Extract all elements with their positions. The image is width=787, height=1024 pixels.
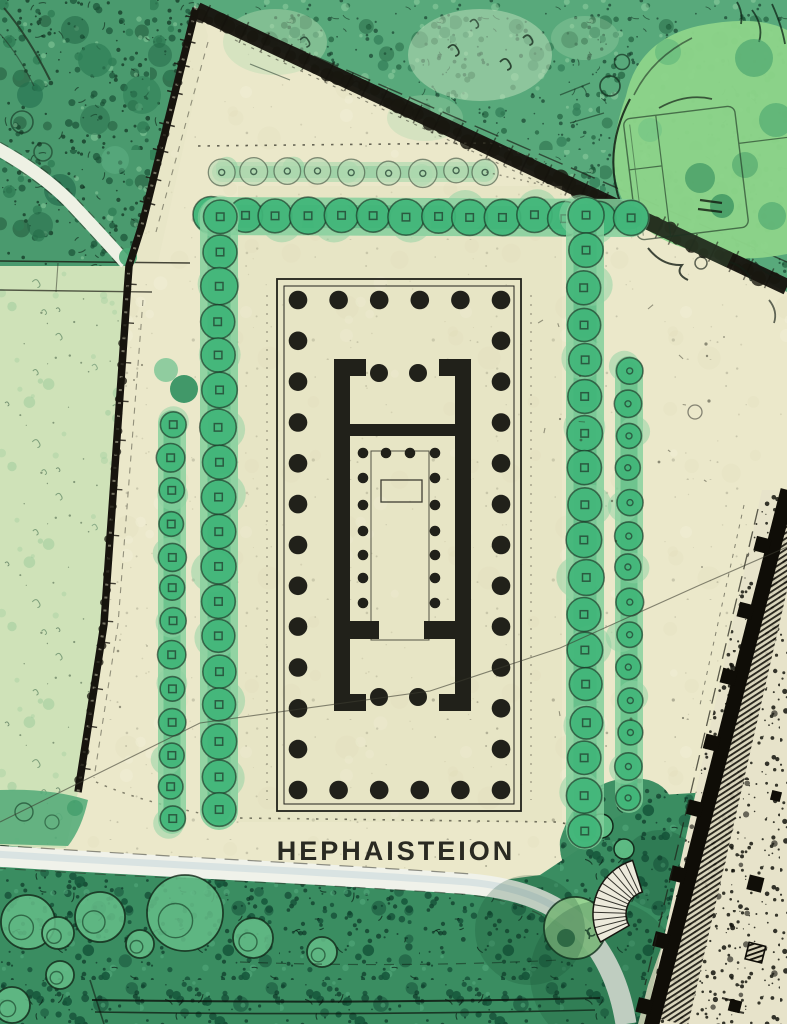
svg-text:HEPHAISTEION: HEPHAISTEION xyxy=(277,836,516,866)
